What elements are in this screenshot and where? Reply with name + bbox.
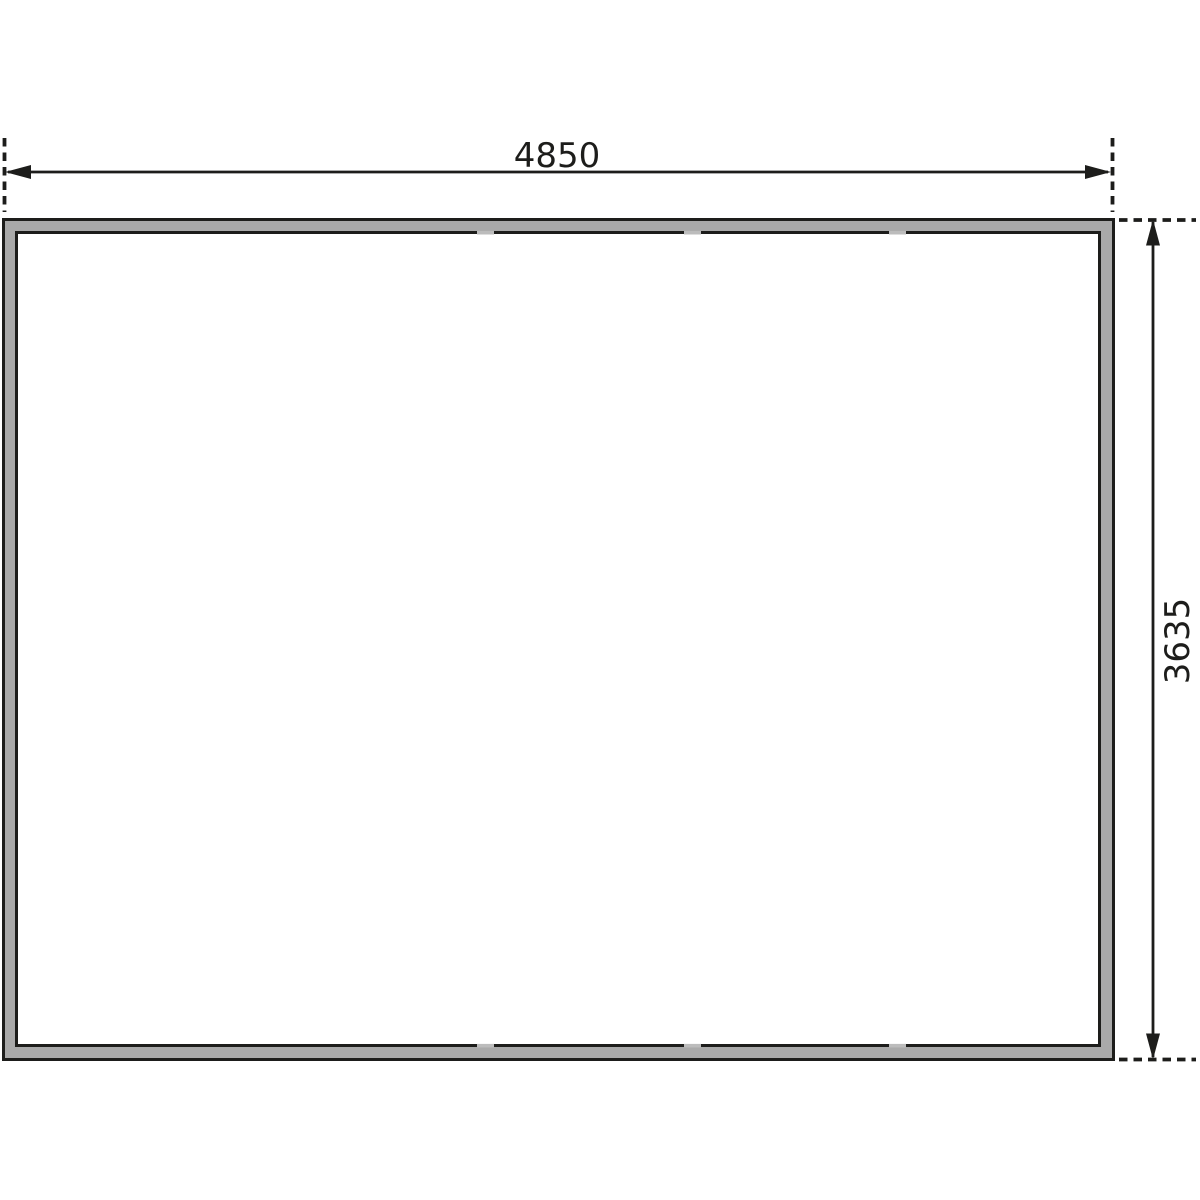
wall-joint-mark	[477, 231, 494, 235]
height-dimension-label: 3635	[1158, 598, 1198, 685]
drawing-canvas: 4850 3635	[0, 0, 1200, 1200]
width-dim-arrow-left	[5, 165, 31, 179]
wall-joint-mark	[684, 231, 701, 235]
wall-inner-rect	[17, 233, 1100, 1046]
wall-joint-mark	[889, 231, 906, 235]
wall-joint-mark	[684, 1044, 701, 1048]
height-dim-arrow-bottom	[1146, 1034, 1160, 1060]
width-dim-arrow-right	[1085, 165, 1111, 179]
wall-joint-mark	[477, 1044, 494, 1048]
floor-plan-svg: 4850 3635	[0, 0, 1200, 1200]
height-dim-arrow-top	[1146, 220, 1160, 246]
wall-joint-mark	[889, 1044, 906, 1048]
width-dimension-label: 4850	[514, 136, 601, 176]
